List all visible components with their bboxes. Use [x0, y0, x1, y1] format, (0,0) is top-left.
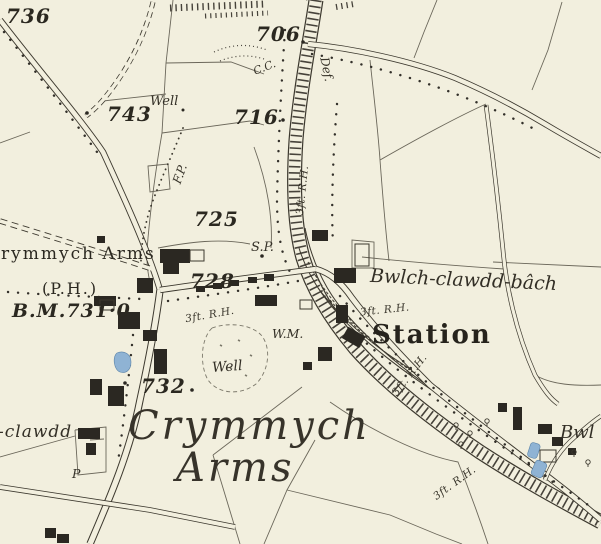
- pub-abbrev-label: (P.H.): [42, 281, 98, 297]
- district-name-line2: Arms: [176, 448, 294, 488]
- benchmark-731-label: B.M.731·0: [12, 302, 131, 321]
- unfenced-track: [0, 2, 153, 269]
- well-label-north: Well: [150, 95, 178, 108]
- weighing-machine-label: W.M.: [272, 328, 303, 341]
- station-label: Station: [372, 322, 492, 348]
- spot-height-725: 725: [194, 209, 239, 229]
- district-name-line1: Crymmych: [128, 406, 371, 446]
- map-viewport[interactable]: 736 706 743 Well 716 C.C. Def. 703·1 F.P…: [0, 0, 601, 544]
- spot-height-736: 736: [6, 6, 51, 26]
- spot-height-716: 716: [234, 107, 279, 127]
- spot-height-743: 743: [107, 104, 152, 124]
- signal-post-label: S.P.: [251, 241, 274, 254]
- spot-height-706: 706: [256, 24, 301, 44]
- pub-name-label: Crymmych Arms: [0, 246, 156, 263]
- spot-height-732: 732: [141, 376, 186, 396]
- pump-label: P: [72, 468, 80, 481]
- spot-height-728: 728: [190, 271, 235, 291]
- well-label-south: Well: [212, 359, 243, 375]
- farm-name-bwl-partial: Bwl: [560, 424, 594, 442]
- farm-name-clawdd-partial: -clawdd: [0, 424, 72, 441]
